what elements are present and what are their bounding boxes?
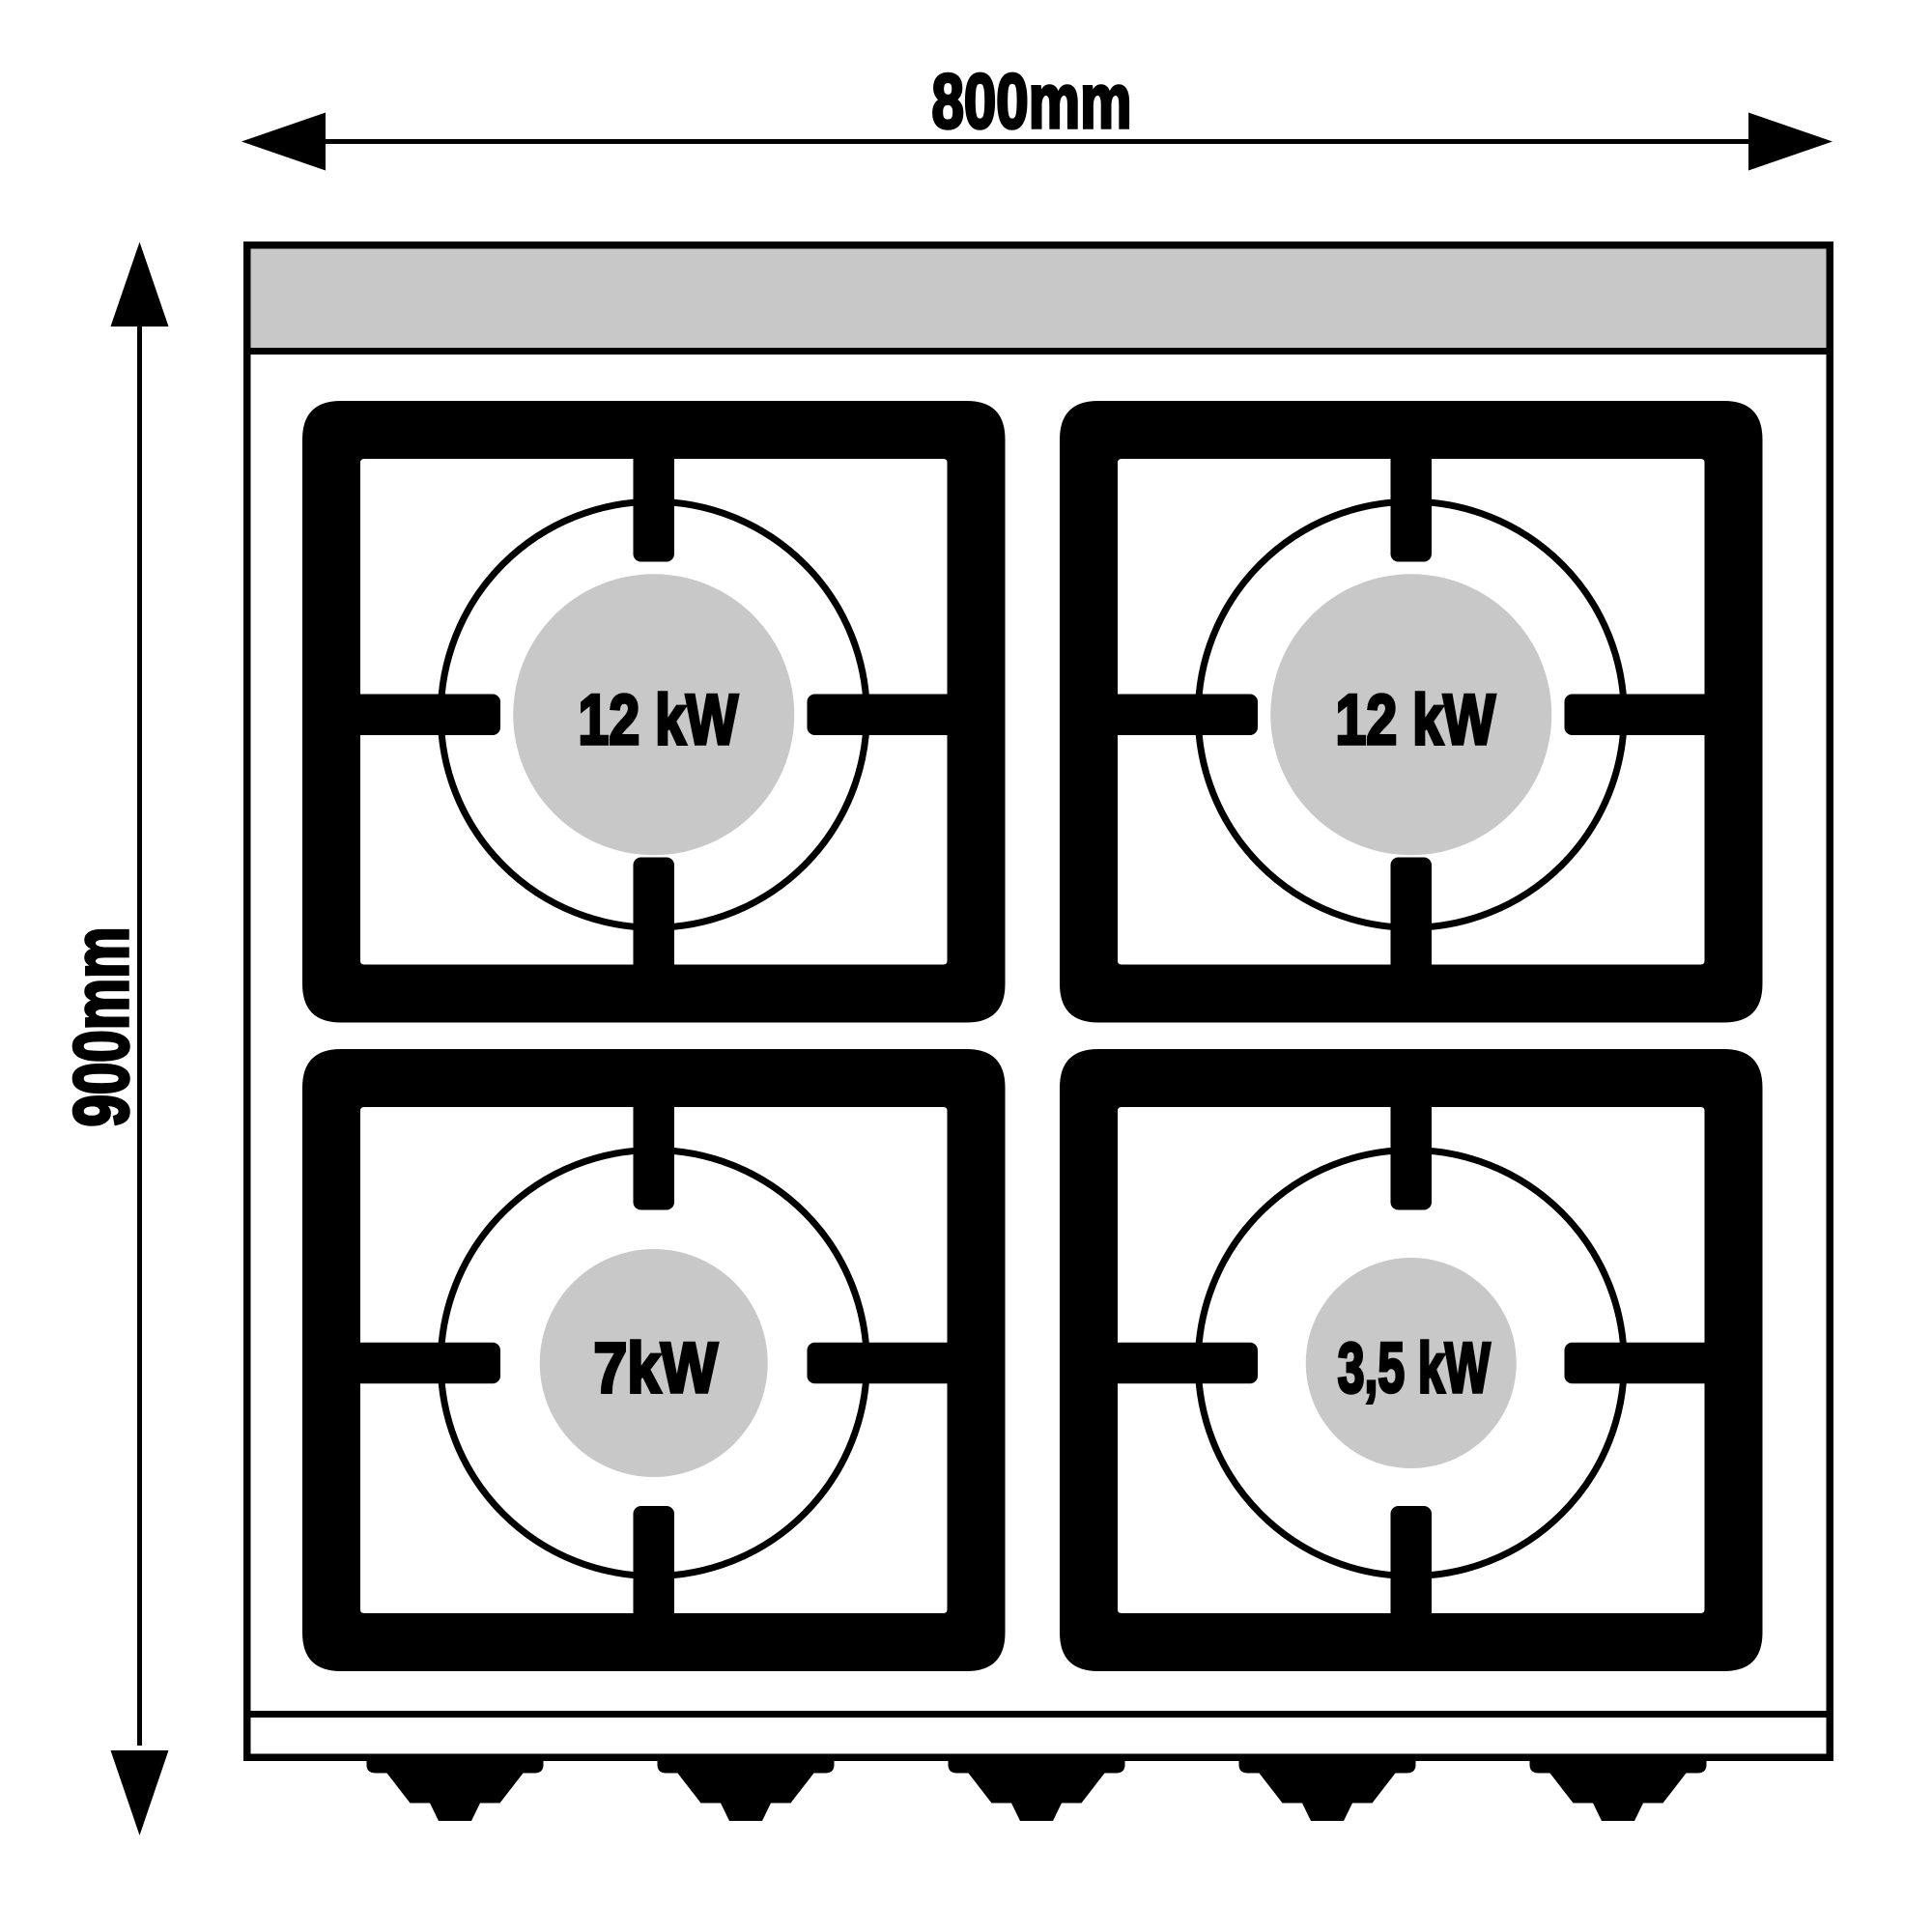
svg-text:12 kW: 12 kW bbox=[579, 681, 739, 759]
svg-text:900mm: 900mm bbox=[58, 927, 144, 1127]
svg-text:7kW: 7kW bbox=[594, 1329, 719, 1407]
svg-text:800mm: 800mm bbox=[932, 58, 1132, 144]
svg-text:3,5 kW: 3,5 kW bbox=[1338, 1329, 1491, 1407]
svg-text:12 kW: 12 kW bbox=[1336, 681, 1496, 759]
